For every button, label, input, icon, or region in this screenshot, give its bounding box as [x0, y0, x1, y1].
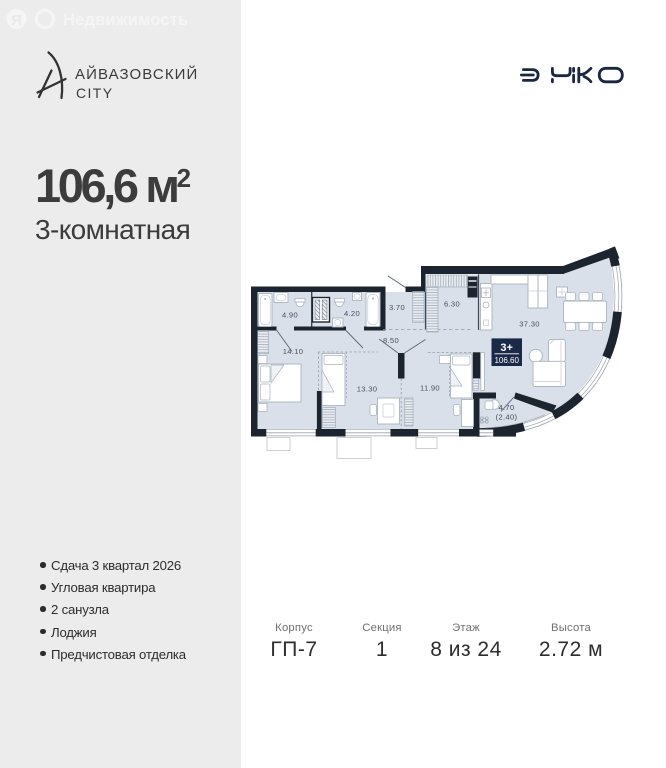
svg-text:(2.40): (2.40): [496, 413, 518, 422]
svg-text:37.30: 37.30: [519, 320, 540, 329]
svg-text:4.70: 4.70: [499, 403, 515, 412]
svg-text:106.60: 106.60: [494, 356, 519, 365]
svg-text:6.30: 6.30: [444, 300, 460, 309]
svg-text:11.90: 11.90: [420, 384, 440, 393]
svg-text:4.90: 4.90: [282, 311, 298, 320]
svg-text:3+: 3+: [500, 342, 513, 354]
svg-text:14.10: 14.10: [283, 347, 304, 356]
svg-text:13.30: 13.30: [357, 385, 378, 394]
svg-text:4.20: 4.20: [344, 309, 360, 318]
svg-text:3.70: 3.70: [389, 303, 405, 312]
